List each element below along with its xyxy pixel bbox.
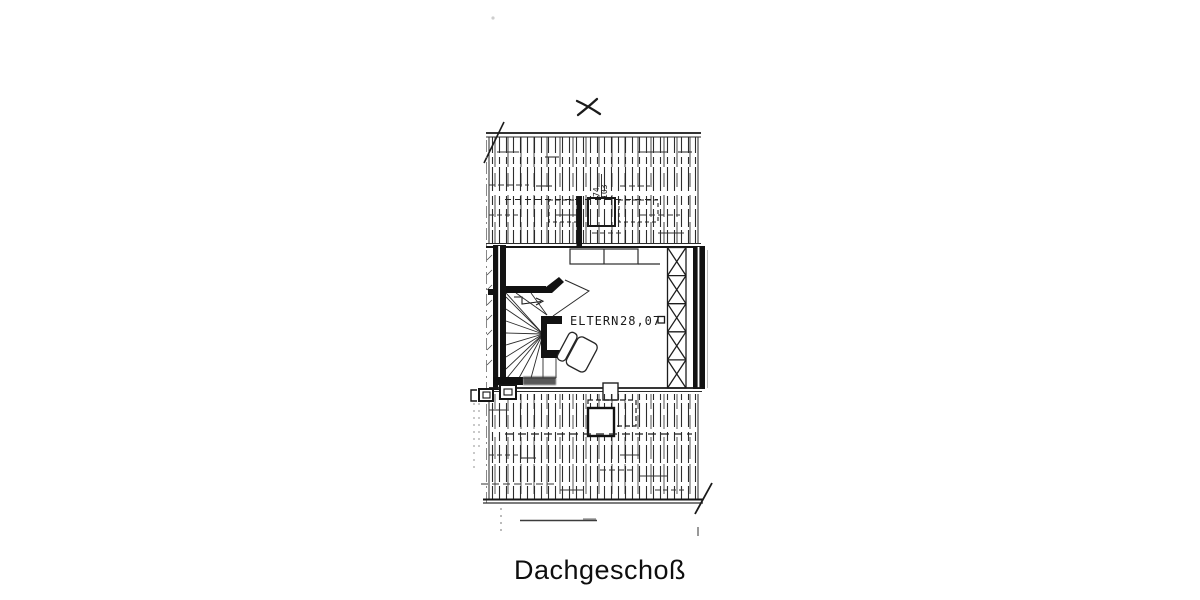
roof-hatch-bottom <box>471 385 712 536</box>
floor-plan-drawing: 74 103 <box>0 0 1200 600</box>
x-cross-mark <box>577 99 600 115</box>
chimney <box>588 408 614 436</box>
sideboard <box>570 249 660 264</box>
partition-wall-stub <box>577 196 583 247</box>
floor-title: Dachgeschoß <box>514 555 686 585</box>
left-wall <box>488 245 506 390</box>
wardrobe-x-boxes <box>668 248 687 389</box>
paper-speck <box>491 16 494 19</box>
armchair <box>556 330 599 373</box>
right-wall <box>693 246 708 389</box>
floor-plan-page: 74 103 <box>0 0 1200 600</box>
roof-hatch-top: 74 103 <box>484 122 701 247</box>
window-dimension-bottom: 103 <box>600 184 609 199</box>
room-name: ELTERN <box>570 314 619 328</box>
room-area: 28,07 <box>620 314 661 328</box>
stair-direction-arrow <box>514 297 543 305</box>
stair-note-smudge <box>523 377 556 386</box>
